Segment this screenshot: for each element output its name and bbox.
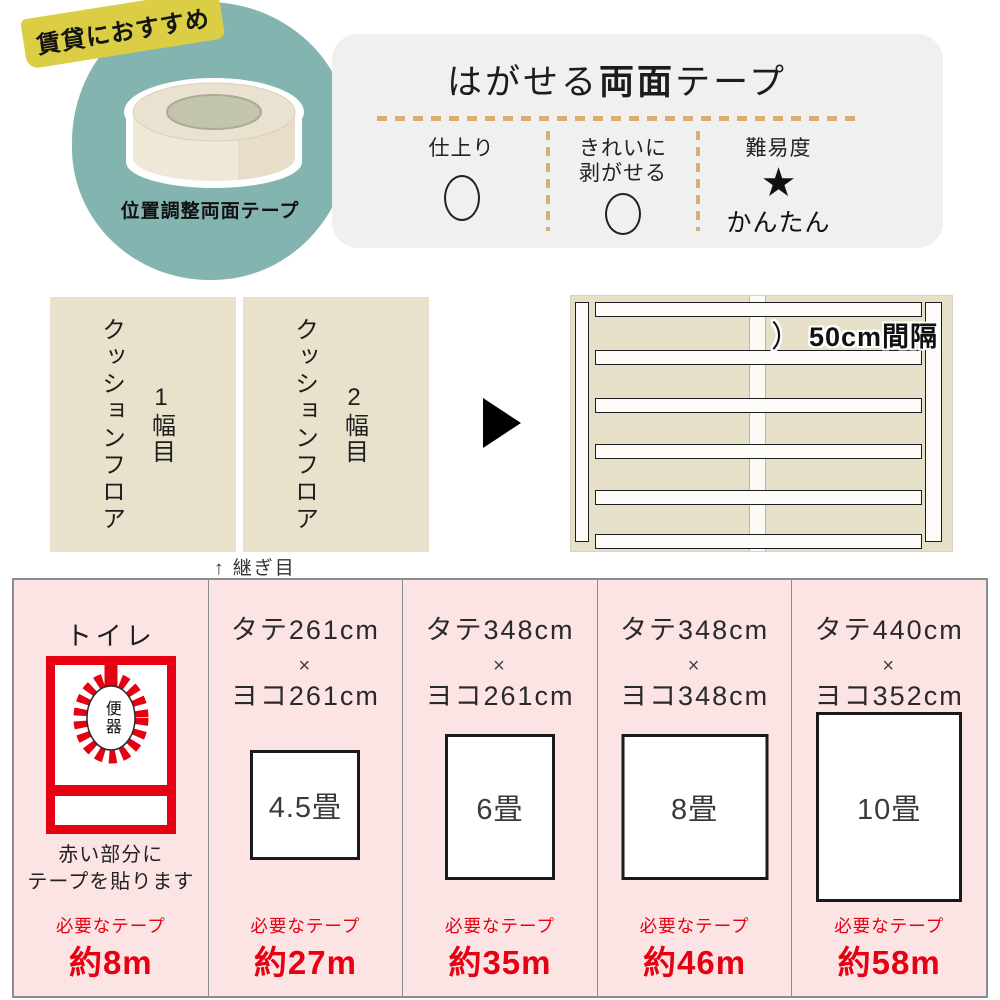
difficulty-caption: かんたん xyxy=(726,203,830,239)
room-box: 10畳 xyxy=(816,712,962,902)
sheet-name: クッションフロア xyxy=(287,317,322,533)
interval-text: 50cm間隔 xyxy=(809,315,938,354)
tape-required-label: 必要なテープ xyxy=(209,913,403,938)
tape-required-label: 必要なテープ xyxy=(792,913,986,938)
tape-amount: 約58m xyxy=(792,936,986,984)
tape-strip xyxy=(595,534,922,549)
sizing-table: トイレ 便器 赤い部分にテープを貼ります 必要なテープ 約8m タテ261cm×… xyxy=(12,578,988,998)
panel-title-part: 両面 xyxy=(599,63,675,102)
room-tate: タテ348cm xyxy=(620,615,769,645)
times-symbol: × xyxy=(299,655,313,677)
feature-finish-label: 仕上り xyxy=(429,129,495,162)
room-box: 6畳 xyxy=(445,734,555,880)
tape-amount: 約35m xyxy=(403,936,597,984)
feature-peel-line1: きれいに xyxy=(579,137,667,160)
product-name: 位置調整両面テープ xyxy=(100,196,320,223)
toilet-caption-line2: テープを貼ります xyxy=(27,871,194,893)
room-dimensions: タテ348cm×ヨコ348cm xyxy=(598,614,792,713)
panel-title-part: はがせる xyxy=(447,63,599,102)
rating-circle-icon xyxy=(444,175,480,221)
room-cell: タテ348cm×ヨコ261cm 6畳 必要なテープ 約35m xyxy=(402,580,597,996)
room-cell: タテ440cm×ヨコ352cm 10畳 必要なテープ 約58m xyxy=(791,580,986,996)
panel-title: はがせる両面テープ xyxy=(377,34,857,105)
tape-strip-vertical xyxy=(575,302,589,542)
tape-required-label: 必要なテープ xyxy=(598,913,792,938)
dashed-divider-horizontal xyxy=(377,116,857,121)
tape-amount: 約8m xyxy=(14,936,208,984)
tape-strip xyxy=(595,490,922,505)
room-dimensions: タテ440cm×ヨコ352cm xyxy=(792,614,986,713)
tape-amount: 約27m xyxy=(209,936,403,984)
feature-peel-label: きれいに剥がせる xyxy=(579,129,667,187)
times-symbol: × xyxy=(493,655,507,677)
room-tate: タテ261cm xyxy=(231,615,380,645)
seam-strip xyxy=(749,296,766,551)
room-box: 8畳 xyxy=(621,734,768,880)
seam-caption: ↑ 継ぎ目 xyxy=(214,553,296,580)
room-cell: タテ348cm×ヨコ348cm 8畳 必要なテープ 約46m xyxy=(597,580,792,996)
room-size: 8畳 xyxy=(671,786,718,828)
toilet-caption-line1: 赤い部分に xyxy=(58,844,163,866)
tape-required-label: 必要なテープ xyxy=(14,913,208,938)
feature-difficulty-label: 難易度 xyxy=(746,129,812,162)
toilet-title: トイレ xyxy=(14,616,208,653)
floor-sheet-2: クッションフロア 2幅目 xyxy=(243,297,429,552)
star-icon: ★ xyxy=(761,163,797,203)
tape-roll-image xyxy=(118,76,310,197)
tape-strip xyxy=(595,398,922,413)
feature-difficulty: 難易度 ★ かんたん xyxy=(700,129,857,235)
times-symbol: × xyxy=(882,655,896,677)
room-size: 4.5畳 xyxy=(269,784,342,826)
feature-peel-line2: 剥がせる xyxy=(579,162,667,185)
panel-title-part: テープ xyxy=(675,63,787,102)
floor-sheet-1: クッションフロア 1幅目 xyxy=(50,297,236,552)
tape-layout-diagram: ） 50cm間隔 xyxy=(570,295,953,552)
room-yoko: ヨコ352cm xyxy=(815,681,964,711)
interval-label: ） 50cm間隔 xyxy=(771,312,938,356)
sheet-width-label: 1幅目 xyxy=(144,384,179,465)
room-size: 10畳 xyxy=(857,786,921,828)
bowl-label: 便器 xyxy=(99,700,123,736)
room-dimensions: タテ261cm×ヨコ261cm xyxy=(209,614,403,713)
room-yoko: ヨコ261cm xyxy=(231,681,380,711)
toilet-cell: トイレ 便器 赤い部分にテープを貼ります 必要なテープ 約8m xyxy=(14,580,208,996)
room-box: 4.5畳 xyxy=(250,750,360,860)
toilet-caption: 赤い部分にテープを貼ります xyxy=(14,842,208,896)
tape-amount: 約46m xyxy=(598,936,792,984)
arrow-right-icon xyxy=(483,398,521,448)
infographic: はがせる両面テープ 仕上り きれいに剥がせる 難易度 ★ かんたん xyxy=(0,0,1000,1000)
room-cell: タテ261cm×ヨコ261cm 4.5畳 必要なテープ 約27m xyxy=(208,580,403,996)
room-dimensions: タテ348cm×ヨコ261cm xyxy=(403,614,597,713)
interval-bracket: ） xyxy=(771,312,801,356)
room-yoko: ヨコ348cm xyxy=(620,681,769,711)
rating-circle-icon xyxy=(605,193,641,235)
times-symbol: × xyxy=(688,655,702,677)
sheet-width-label: 2幅目 xyxy=(337,384,372,465)
tape-strip xyxy=(595,444,922,459)
room-size: 6畳 xyxy=(476,786,523,828)
feature-peel: きれいに剥がせる xyxy=(550,129,696,235)
feature-panel: はがせる両面テープ 仕上り きれいに剥がせる 難易度 ★ かんたん xyxy=(332,34,943,248)
sheet-name: クッションフロア xyxy=(94,317,129,533)
room-tate: タテ348cm xyxy=(425,615,574,645)
toilet-tape-botbar xyxy=(55,785,167,796)
room-tate: タテ440cm xyxy=(815,615,964,645)
room-yoko: ヨコ261cm xyxy=(425,681,574,711)
feature-finish: 仕上り xyxy=(377,129,546,235)
toilet-diagram: 便器 xyxy=(46,656,176,834)
tape-required-label: 必要なテープ xyxy=(403,913,597,938)
